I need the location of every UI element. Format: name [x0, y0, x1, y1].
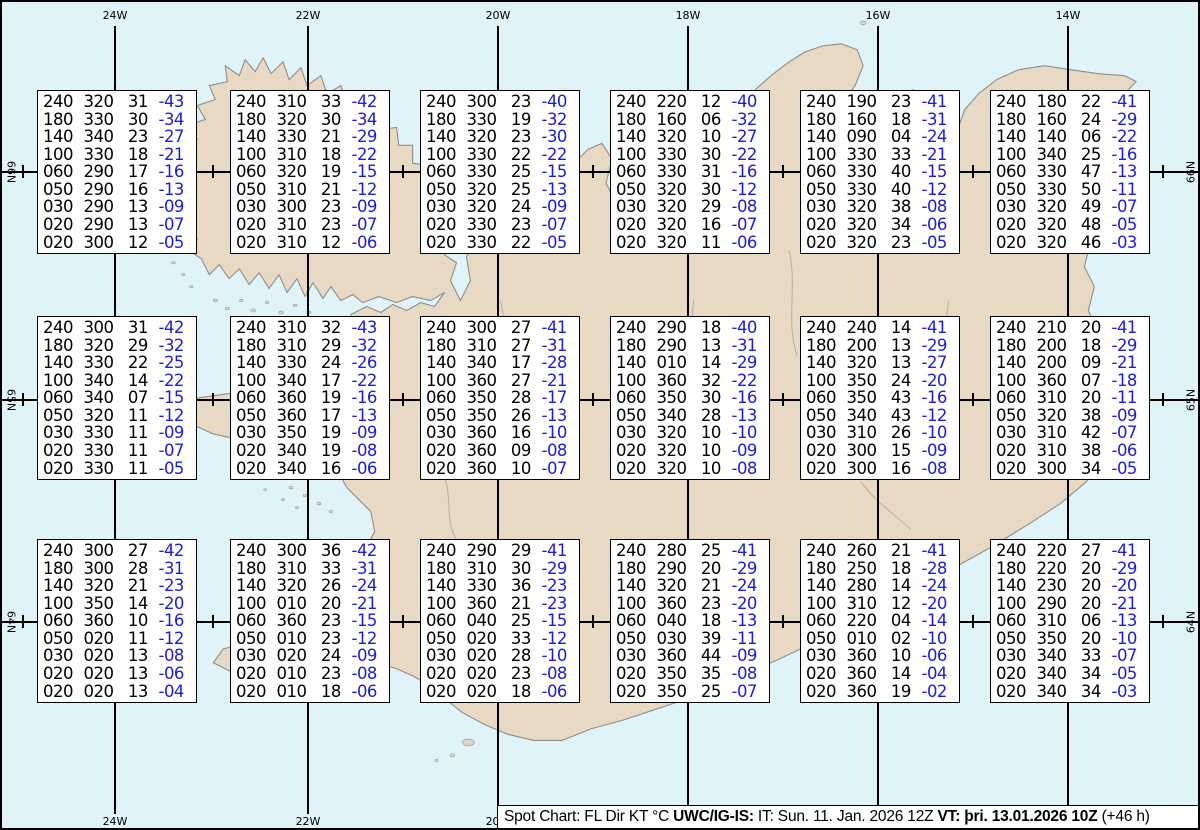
flight-level: 100	[236, 595, 276, 612]
flight-level: 140	[996, 354, 1036, 371]
graticule-minor-tick	[402, 615, 404, 628]
wind-speed-kt: 23	[701, 595, 732, 612]
temperature-c: -16	[158, 612, 196, 629]
temperature-c: -30	[541, 128, 579, 145]
temperature-c: -24	[921, 577, 959, 594]
flight-level: 180	[806, 337, 846, 354]
flight-level: 240	[616, 93, 656, 110]
spot-box-row: 03033011-09	[43, 424, 196, 441]
spot-box-66n-14w: 24018022-4118016024-2914014006-221003402…	[990, 90, 1150, 254]
spot-box-row: 05032011-12	[43, 407, 196, 424]
spot-box-65n-20w: 24030027-4118031027-3114034017-281003602…	[420, 316, 580, 480]
spot-box-row: 10036027-21	[426, 372, 579, 389]
wind-speed-kt: 23	[321, 198, 352, 215]
wind-speed-kt: 22	[128, 354, 159, 371]
flight-level: 020	[616, 460, 656, 477]
flight-level: 180	[426, 560, 466, 577]
spot-box-row: 18016024-29	[996, 111, 1149, 128]
flight-level: 050	[996, 630, 1036, 647]
wind-direction: 360	[1036, 372, 1080, 389]
flight-level: 020	[426, 234, 466, 251]
flight-level: 240	[616, 542, 656, 559]
wind-direction: 160	[846, 111, 890, 128]
temperature-c: -06	[921, 647, 959, 664]
wind-speed-kt: 18	[701, 319, 732, 336]
wind-direction: 020	[466, 630, 510, 647]
wind-direction: 310	[276, 146, 320, 163]
wind-speed-kt: 13	[128, 216, 159, 233]
flight-level: 180	[43, 111, 83, 128]
wind-speed-kt: 18	[321, 146, 352, 163]
wind-direction: 280	[656, 542, 700, 559]
wind-direction: 360	[466, 424, 510, 441]
temperature-c: -42	[158, 542, 196, 559]
temperature-c: -21	[921, 146, 959, 163]
flight-level: 240	[806, 542, 846, 559]
flight-level: 180	[616, 111, 656, 128]
temperature-c: -08	[921, 198, 959, 215]
spot-box-row: 14032010-27	[616, 128, 769, 145]
wind-direction: 350	[1036, 630, 1080, 647]
wind-direction: 330	[656, 163, 700, 180]
temperature-c: -21	[1111, 595, 1149, 612]
flight-level: 050	[43, 630, 83, 647]
wind-speed-kt: 39	[701, 630, 732, 647]
spot-box-row: 24018022-41	[996, 93, 1149, 110]
temperature-c: -09	[351, 198, 389, 215]
spot-box-row: 02033023-07	[426, 216, 579, 233]
temperature-c: -03	[1111, 234, 1149, 251]
wind-speed-kt: 18	[1081, 337, 1112, 354]
flight-level: 140	[43, 354, 83, 371]
wind-speed-kt: 27	[511, 372, 542, 389]
flight-level: 180	[806, 111, 846, 128]
wind-direction: 300	[466, 319, 510, 336]
spot-box-row: 03002028-10	[426, 647, 579, 664]
wind-speed-kt: 16	[511, 424, 542, 441]
wind-speed-kt: 36	[321, 542, 352, 559]
spot-box-row: 06036019-16	[236, 389, 389, 406]
wind-direction: 300	[83, 560, 127, 577]
spot-box-row: 03036010-06	[806, 647, 959, 664]
wind-direction: 300	[276, 542, 320, 559]
flight-level: 100	[996, 372, 1036, 389]
wind-speed-kt: 30	[701, 181, 732, 198]
spot-box-row: 02036019-02	[806, 683, 959, 700]
temperature-c: -13	[731, 612, 769, 629]
temperature-c: -32	[541, 111, 579, 128]
wind-speed-kt: 32	[321, 319, 352, 336]
wind-speed-kt: 19	[321, 424, 352, 441]
parallel-label-right-65n: 65N	[1185, 389, 1198, 411]
flight-level: 050	[426, 630, 466, 647]
flight-level: 060	[43, 612, 83, 629]
spot-box-row: 05035026-13	[426, 407, 579, 424]
flight-level: 020	[806, 665, 846, 682]
temperature-c: -14	[921, 612, 959, 629]
wind-speed-kt: 22	[511, 234, 542, 251]
wind-speed-kt: 15	[891, 442, 922, 459]
flight-level: 140	[426, 354, 466, 371]
spot-box-row: 03035019-09	[236, 424, 389, 441]
temperature-c: -12	[731, 181, 769, 198]
wind-direction: 360	[656, 372, 700, 389]
spot-box-row: 03032029-08	[616, 198, 769, 215]
flight-level: 020	[236, 683, 276, 700]
wind-direction: 320	[276, 577, 320, 594]
temperature-c: -27	[921, 354, 959, 371]
flight-level: 020	[996, 442, 1036, 459]
wind-direction: 320	[846, 198, 890, 215]
wind-direction: 020	[83, 665, 127, 682]
wind-speed-kt: 12	[891, 595, 922, 612]
wind-direction: 230	[1036, 577, 1080, 594]
temperature-c: -10	[1111, 630, 1149, 647]
wind-speed-kt: 19	[511, 111, 542, 128]
wind-speed-kt: 06	[1081, 128, 1112, 145]
meridian-label-top-20w: 20W	[486, 9, 511, 22]
wind-direction: 330	[466, 234, 510, 251]
temperature-c: -29	[1111, 111, 1149, 128]
flight-level: 020	[43, 683, 83, 700]
temperature-c: -16	[351, 389, 389, 406]
wind-direction: 320	[656, 442, 700, 459]
wind-direction: 350	[846, 372, 890, 389]
spot-box-row: 18031029-32	[236, 337, 389, 354]
spot-box-row: 24024014-41	[806, 319, 959, 336]
spot-box-row: 02036009-08	[426, 442, 579, 459]
flight-level: 020	[616, 234, 656, 251]
wind-speed-kt: 25	[701, 542, 732, 559]
temperature-c: -41	[1111, 93, 1149, 110]
wind-direction: 220	[656, 93, 700, 110]
spot-box-row: 05033050-11	[996, 181, 1149, 198]
spot-box-row: 14020009-21	[996, 354, 1149, 371]
spot-box-row: 03032049-07	[996, 198, 1149, 215]
temperature-c: -31	[158, 560, 196, 577]
wind-speed-kt: 25	[511, 181, 542, 198]
wind-direction: 330	[846, 146, 890, 163]
temperature-c: -32	[731, 111, 769, 128]
spot-box-row: 10034025-16	[996, 146, 1149, 163]
wind-speed-kt: 47	[1081, 163, 1112, 180]
meridian-label-bottom-24w: 24W	[103, 815, 128, 828]
flight-level: 240	[996, 542, 1036, 559]
wind-speed-kt: 33	[321, 560, 352, 577]
wind-direction: 040	[466, 612, 510, 629]
wind-direction: 310	[466, 560, 510, 577]
spot-box-row: 14009004-24	[806, 128, 959, 145]
wind-speed-kt: 23	[511, 216, 542, 233]
spot-box-row: 02029013-07	[43, 216, 196, 233]
wind-direction: 220	[1036, 542, 1080, 559]
wind-direction: 340	[846, 407, 890, 424]
spot-box-row: 24030031-42	[43, 319, 196, 336]
wind-direction: 290	[83, 216, 127, 233]
wind-speed-kt: 38	[1081, 442, 1112, 459]
temperature-c: -08	[731, 198, 769, 215]
temperature-c: -32	[351, 337, 389, 354]
spot-box-row: 06036010-16	[43, 612, 196, 629]
temperature-c: -21	[1111, 354, 1149, 371]
flight-level: 020	[236, 234, 276, 251]
flight-level: 050	[426, 181, 466, 198]
wind-speed-kt: 22	[1081, 93, 1112, 110]
wind-direction: 020	[466, 683, 510, 700]
wind-speed-kt: 23	[511, 665, 542, 682]
temperature-c: -07	[351, 216, 389, 233]
wind-direction: 340	[1036, 683, 1080, 700]
temperature-c: -41	[921, 93, 959, 110]
spot-box-row: 14032021-23	[43, 577, 196, 594]
flight-level: 050	[996, 181, 1036, 198]
wind-direction: 350	[466, 407, 510, 424]
wind-speed-kt: 14	[701, 354, 732, 371]
graticule-minor-tick	[782, 165, 784, 178]
wind-speed-kt: 33	[511, 630, 542, 647]
wind-direction: 360	[846, 665, 890, 682]
wind-speed-kt: 25	[511, 612, 542, 629]
spot-box-row: 06031020-11	[996, 389, 1149, 406]
flight-level: 020	[616, 665, 656, 682]
temperature-c: -15	[351, 163, 389, 180]
wind-direction: 290	[656, 319, 700, 336]
flight-level: 180	[426, 111, 466, 128]
spot-box-row: 03030023-09	[236, 198, 389, 215]
wind-speed-kt: 40	[891, 181, 922, 198]
wind-speed-kt: 06	[701, 111, 732, 128]
wind-direction: 320	[466, 128, 510, 145]
spot-box-row: 03032010-10	[616, 424, 769, 441]
flight-level: 140	[806, 128, 846, 145]
temperature-c: -22	[351, 146, 389, 163]
wind-direction: 360	[466, 595, 510, 612]
wind-speed-kt: 18	[511, 683, 542, 700]
flight-level: 060	[236, 612, 276, 629]
wind-speed-kt: 23	[321, 612, 352, 629]
wind-direction: 350	[656, 683, 700, 700]
flight-level: 030	[43, 647, 83, 664]
wind-direction: 320	[83, 337, 127, 354]
wind-direction: 020	[466, 665, 510, 682]
graticule-minor-tick	[782, 393, 784, 406]
flight-level: 060	[996, 612, 1036, 629]
meridian-label-top-16w: 16W	[866, 9, 891, 22]
flight-level: 060	[426, 612, 466, 629]
spot-box-row: 05031021-12	[236, 181, 389, 198]
temperature-c: -06	[351, 234, 389, 251]
temperature-c: -26	[351, 354, 389, 371]
temperature-c: -27	[158, 128, 196, 145]
flight-level: 020	[806, 442, 846, 459]
wind-direction: 290	[656, 337, 700, 354]
temperature-c: -07	[541, 216, 579, 233]
spot-box-row: 14033024-26	[236, 354, 389, 371]
wind-direction: 020	[83, 683, 127, 700]
spot-box-row: 02001018-06	[236, 683, 389, 700]
wind-direction: 350	[656, 389, 700, 406]
wind-direction: 340	[656, 407, 700, 424]
temperature-c: -07	[1111, 647, 1149, 664]
temperature-c: -40	[541, 93, 579, 110]
wind-speed-kt: 21	[321, 128, 352, 145]
wind-direction: 290	[83, 198, 127, 215]
wind-direction: 010	[276, 630, 320, 647]
wind-speed-kt: 09	[511, 442, 542, 459]
wind-speed-kt: 12	[321, 234, 352, 251]
spot-box-row: 05003039-11	[616, 630, 769, 647]
wind-speed-kt: 27	[128, 542, 159, 559]
parallel-label-right-64n: 64N	[1185, 611, 1198, 633]
wind-speed-kt: 20	[1081, 319, 1112, 336]
meridian-label-top-22w: 22W	[296, 9, 321, 22]
wind-direction: 340	[83, 389, 127, 406]
spot-box-row: 06004018-13	[616, 612, 769, 629]
flight-level: 060	[236, 163, 276, 180]
temperature-c: -09	[1111, 407, 1149, 424]
spot-box-64n-16w: 24026021-4118025018-2814028014-241003101…	[800, 539, 960, 703]
temperature-c: -04	[158, 683, 196, 700]
flight-level: 140	[996, 577, 1036, 594]
flight-level: 020	[616, 442, 656, 459]
spot-box-row: 10035014-20	[43, 595, 196, 612]
flight-level: 180	[236, 111, 276, 128]
spot-box-row: 03036044-09	[616, 647, 769, 664]
spot-box-row: 02001023-08	[236, 665, 389, 682]
flight-level: 060	[996, 389, 1036, 406]
temperature-c: -08	[731, 665, 769, 682]
spot-box-row: 24031032-43	[236, 319, 389, 336]
spot-box-row: 03031042-07	[996, 424, 1149, 441]
wind-speed-kt: 36	[511, 577, 542, 594]
temperature-c: -10	[731, 424, 769, 441]
wind-speed-kt: 13	[128, 198, 159, 215]
spot-box-row: 06031006-13	[996, 612, 1149, 629]
spot-box-row: 14032013-27	[806, 354, 959, 371]
meridian-label-top-14w: 14W	[1056, 9, 1081, 22]
temperature-c: -12	[921, 181, 959, 198]
spot-box-row: 18016006-32	[616, 111, 769, 128]
spot-box-row: 02035025-07	[616, 683, 769, 700]
flight-level: 060	[43, 389, 83, 406]
wind-speed-kt: 18	[701, 612, 732, 629]
spot-box-row: 10033018-21	[43, 146, 196, 163]
wind-speed-kt: 31	[128, 319, 159, 336]
temperature-c: -03	[1111, 683, 1149, 700]
spot-box-row: 02032016-07	[616, 216, 769, 233]
spot-box-row: 14034023-27	[43, 128, 196, 145]
temperature-c: -34	[351, 111, 389, 128]
temperature-c: -07	[158, 442, 196, 459]
wind-speed-kt: 11	[128, 630, 159, 647]
wind-speed-kt: 20	[1081, 630, 1112, 647]
wind-speed-kt: 07	[1081, 372, 1112, 389]
status-valid-time: VT: þri. 13.01.2026 10Z	[938, 808, 1098, 826]
wind-speed-kt: 20	[1081, 560, 1112, 577]
spot-box-row: 18020018-29	[996, 337, 1149, 354]
wind-speed-kt: 32	[701, 372, 732, 389]
flight-level: 060	[996, 163, 1036, 180]
flight-level: 020	[43, 234, 83, 251]
wind-speed-kt: 26	[511, 407, 542, 424]
wind-speed-kt: 19	[321, 163, 352, 180]
temperature-c: -13	[351, 407, 389, 424]
wind-direction: 310	[276, 216, 320, 233]
spot-box-row: 02032010-08	[616, 460, 769, 477]
wind-direction: 320	[466, 181, 510, 198]
flight-level: 020	[43, 665, 83, 682]
wind-speed-kt: 13	[128, 647, 159, 664]
temperature-c: -25	[158, 354, 196, 371]
temperature-c: -21	[541, 372, 579, 389]
wind-direction: 330	[656, 146, 700, 163]
wind-direction: 320	[1036, 198, 1080, 215]
temperature-c: -05	[1111, 216, 1149, 233]
spot-box-row: 06033047-13	[996, 163, 1149, 180]
flight-level: 100	[996, 146, 1036, 163]
temperature-c: -10	[541, 424, 579, 441]
wind-direction: 330	[83, 111, 127, 128]
wind-direction: 290	[656, 560, 700, 577]
flight-level: 030	[616, 424, 656, 441]
spot-box-64n-14w: 24022027-4118022020-2914023020-201002902…	[990, 539, 1150, 703]
wind-direction: 360	[466, 442, 510, 459]
wind-direction: 340	[1036, 647, 1080, 664]
wind-direction: 020	[276, 647, 320, 664]
wind-speed-kt: 13	[701, 337, 732, 354]
spot-box-66n-22w: 24031033-4218032030-3414033021-291003101…	[230, 90, 390, 254]
spot-box-row: 10033033-21	[806, 146, 959, 163]
flight-level: 180	[236, 337, 276, 354]
wind-speed-kt: 43	[891, 407, 922, 424]
spot-box-row: 02031038-06	[996, 442, 1149, 459]
temperature-c: -22	[158, 372, 196, 389]
wind-direction: 280	[846, 577, 890, 594]
flight-level: 020	[806, 683, 846, 700]
temperature-c: -34	[158, 111, 196, 128]
temperature-c: -05	[158, 460, 196, 477]
flight-level: 140	[616, 354, 656, 371]
wind-direction: 320	[846, 354, 890, 371]
wind-speed-kt: 28	[128, 560, 159, 577]
spot-box-row: 05029016-13	[43, 181, 196, 198]
flight-level: 180	[43, 560, 83, 577]
temperature-c: -21	[158, 146, 196, 163]
wind-speed-kt: 42	[1081, 424, 1112, 441]
wind-direction: 360	[656, 647, 700, 664]
flight-level: 020	[806, 216, 846, 233]
spot-box-row: 06033031-16	[616, 163, 769, 180]
temperature-c: -08	[158, 647, 196, 664]
wind-direction: 330	[83, 354, 127, 371]
wind-speed-kt: 30	[511, 560, 542, 577]
temperature-c: -13	[731, 407, 769, 424]
temperature-c: -05	[921, 234, 959, 251]
temperature-c: -20	[731, 595, 769, 612]
flight-level: 240	[236, 542, 276, 559]
spot-box-row: 02034019-08	[236, 442, 389, 459]
spot-box-row: 03034033-07	[996, 647, 1149, 664]
wind-direction: 320	[656, 198, 700, 215]
wind-speed-kt: 16	[701, 216, 732, 233]
wind-speed-kt: 02	[891, 630, 922, 647]
wind-speed-kt: 25	[701, 683, 732, 700]
spot-box-66n-16w: 24019023-4118016018-3114009004-241003303…	[800, 90, 960, 254]
wind-direction: 320	[276, 111, 320, 128]
wind-direction: 360	[83, 612, 127, 629]
flight-level: 020	[806, 234, 846, 251]
wind-direction: 300	[846, 442, 890, 459]
